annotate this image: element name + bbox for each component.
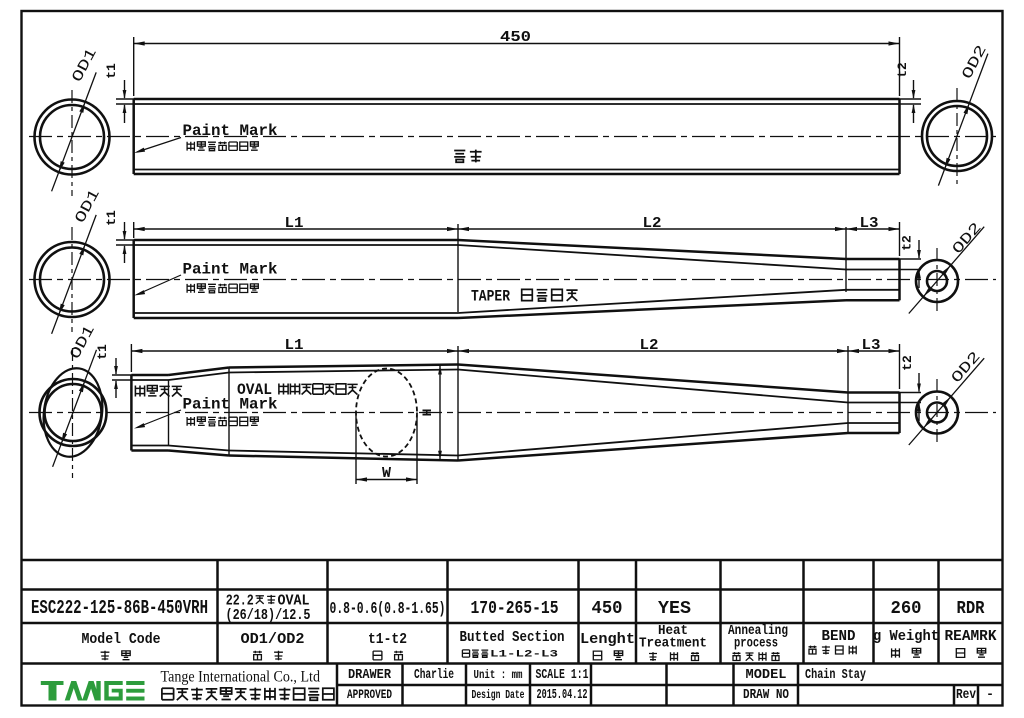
- svg-text:DRAW NO: DRAW NO: [743, 687, 789, 703]
- svg-text:TAPER: TAPER: [471, 288, 511, 306]
- svg-text:t2: t2: [895, 62, 910, 78]
- svg-text:Rev: Rev: [956, 687, 976, 703]
- svg-text:t2: t2: [900, 235, 915, 251]
- svg-text:t2: t2: [900, 355, 915, 371]
- svg-text:OD1/OD2: OD1/OD2: [241, 632, 305, 648]
- svg-text:YES: YES: [658, 599, 691, 619]
- svg-text:450: 450: [500, 29, 531, 46]
- svg-text:ESC222-125-86B-450VRH: ESC222-125-86B-450VRH: [31, 597, 208, 619]
- svg-text:Chain Stay: Chain Stay: [805, 667, 866, 683]
- svg-text:L1: L1: [285, 215, 304, 232]
- svg-text:REAMRK: REAMRK: [945, 629, 997, 645]
- svg-text:t1-t2: t1-t2: [368, 632, 407, 648]
- svg-text:W: W: [382, 465, 391, 482]
- svg-text:L1-L2-L3: L1-L2-L3: [490, 650, 558, 661]
- svg-text:SCALE 1:1: SCALE 1:1: [536, 668, 589, 683]
- svg-text:H: H: [420, 409, 435, 417]
- svg-text:260: 260: [891, 599, 922, 619]
- svg-text:L2: L2: [640, 337, 659, 354]
- svg-text:2015.04.12: 2015.04.12: [537, 688, 588, 703]
- svg-text:-: -: [986, 687, 994, 702]
- svg-text:Model Code: Model Code: [82, 632, 161, 648]
- svg-text:t1: t1: [104, 210, 119, 226]
- svg-text:450: 450: [592, 599, 623, 619]
- svg-text:Charlie: Charlie: [414, 667, 454, 683]
- svg-text:Lenght: Lenght: [580, 632, 635, 648]
- svg-text:MODEL: MODEL: [746, 667, 787, 683]
- svg-text:BEND: BEND: [822, 629, 856, 645]
- svg-text:L3: L3: [862, 337, 881, 354]
- svg-text:Design Date: Design Date: [472, 688, 525, 702]
- svg-text:Paint Mark: Paint Mark: [183, 122, 278, 140]
- svg-text:Unit : mm: Unit : mm: [474, 668, 523, 682]
- svg-text:Treatment: Treatment: [639, 637, 707, 652]
- svg-text:0.8-0.6(0.8-1.65): 0.8-0.6(0.8-1.65): [330, 600, 446, 619]
- svg-text:L3: L3: [860, 215, 879, 232]
- svg-text:Butted Section: Butted Section: [460, 630, 565, 646]
- svg-text:L1: L1: [285, 337, 304, 354]
- svg-text:process: process: [734, 637, 778, 652]
- svg-text:Paint Mark: Paint Mark: [183, 261, 278, 279]
- svg-text:APPROVED: APPROVED: [347, 688, 392, 702]
- svg-text:t1: t1: [95, 344, 110, 360]
- svg-text:(26/18)/12.5: (26/18)/12.5: [226, 607, 311, 624]
- svg-text:Paint Mark: Paint Mark: [183, 396, 278, 414]
- svg-text:RDR: RDR: [957, 599, 985, 619]
- svg-text:g Weight: g Weight: [873, 629, 939, 645]
- svg-text:170-265-15: 170-265-15: [471, 599, 559, 619]
- svg-text:t1: t1: [104, 63, 119, 79]
- svg-text:L2: L2: [643, 215, 662, 232]
- svg-text:DRAWER: DRAWER: [348, 667, 391, 683]
- svg-text:Tange International Co., Ltd: Tange International Co., Ltd: [161, 669, 321, 686]
